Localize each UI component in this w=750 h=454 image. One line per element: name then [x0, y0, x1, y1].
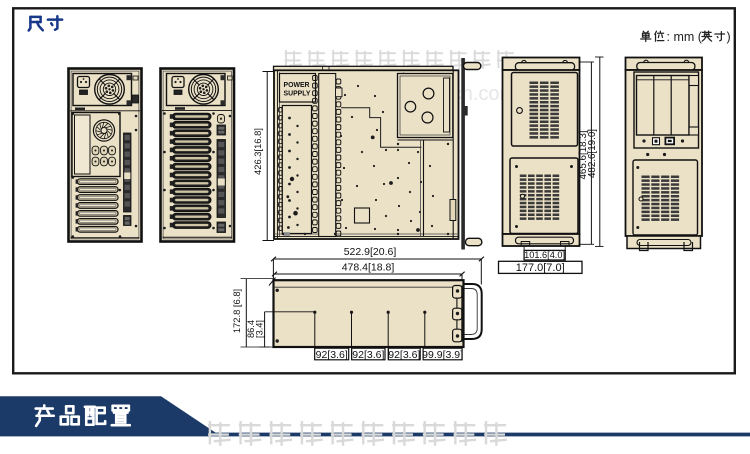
svg-text:101.6[4.0]: 101.6[4.0]	[524, 250, 565, 260]
svg-text:SUPPLY: SUPPLY	[284, 91, 311, 98]
svg-text:[3.4]: [3.4]	[255, 320, 265, 338]
svg-text:177.0[7.0]: 177.0[7.0]	[516, 262, 565, 274]
svg-text:: mm (: : mm (	[667, 30, 703, 44]
svg-text:478.4[18.8]: 478.4[18.8]	[342, 262, 395, 274]
svg-text:99.9[3.9]: 99.9[3.9]	[422, 349, 463, 361]
svg-text:92[3.6]: 92[3.6]	[316, 349, 348, 361]
svg-text:POWER: POWER	[284, 82, 310, 89]
svg-text:426.3[16.8]: 426.3[16.8]	[252, 128, 263, 175]
svg-text:92[3.6]: 92[3.6]	[388, 349, 420, 361]
svg-text:172.8 [6.8]: 172.8 [6.8]	[231, 289, 242, 333]
svg-text:482.6[19.0]: 482.6[19.0]	[587, 129, 598, 178]
svg-text:): )	[727, 30, 731, 44]
svg-text:522.9[20.6]: 522.9[20.6]	[344, 246, 397, 258]
svg-text:92[3.6]: 92[3.6]	[352, 349, 384, 361]
